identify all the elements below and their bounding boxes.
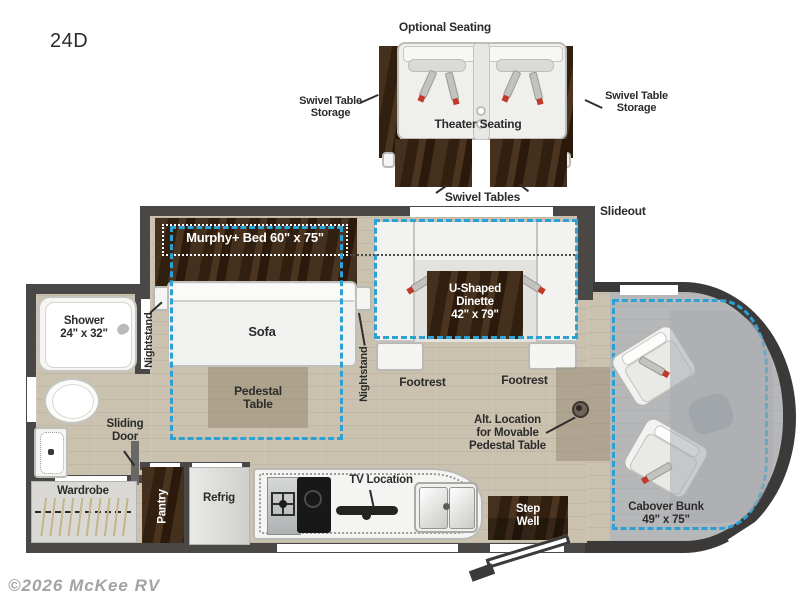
slideout-label: Slideout [600,205,660,218]
nightstand-right-label: Nightstand [358,334,370,414]
cupholder-1 [476,106,486,116]
footrest-right [528,342,577,370]
storage-foot-left [382,152,395,168]
footrest-left [376,342,424,371]
sink-faucet-icon [443,503,450,510]
step-well-label: Step Well [498,503,558,529]
tv-mount [362,511,371,520]
sliding-door-label: Sliding Door [92,418,158,444]
window [27,377,36,422]
swivel-table-storage-left-label: Swivel Table Storage [288,95,373,120]
window [620,285,678,295]
entry-door-cap [469,563,495,582]
pedestal-mount-dot [576,405,582,411]
floorplan-page: 24D Optional Seating Theater Seating Swi… [0,0,800,600]
theater-armrest-left [408,59,466,72]
cooktop-center-knob [279,500,287,508]
pantry-label: Pantry [157,466,170,546]
refrig-label: Refrig [195,492,243,505]
swivel-tables-label: Swivel Tables [430,191,535,204]
tv-location-label: TV Location [340,474,422,487]
window [277,544,458,552]
model-label: 24D [50,30,88,52]
window [410,207,553,217]
theater-armrest-right [496,59,554,72]
cabover-bunk-overlay [670,310,773,523]
optional-seating-title: Optional Seating [385,21,505,34]
dinette-slide-region [374,219,578,339]
swivel-table-right [490,139,567,187]
shower-label: Shower 24" x 32" [49,315,119,341]
toilet-seat [52,384,94,419]
murphy-extension-dotted-line [350,254,575,256]
oven-ring-icon [304,490,322,508]
footrest-right-label: Footrest [487,374,562,387]
alt-pedestal-label: Alt. Location for Movable Pedestal Table [455,414,560,453]
footrest-left-label: Footrest [385,376,460,389]
sink-bowl-right [449,487,475,529]
wardrobe-hangers [38,498,130,536]
watermark: ©2026 McKee RV [8,576,208,595]
murphy-slide-region [170,226,343,440]
swivel-table-storage-right-label: Swivel Table Storage [594,90,679,115]
cabover-bunk-label: Cabover Bunk 49" x 75" [616,501,716,527]
refrigerator [189,467,250,545]
wardrobe-label: Wardrobe [45,485,121,498]
dinette-right-wall [577,206,593,300]
theater-seating-label: Theater Seating [418,118,538,131]
swivel-table-left [395,139,472,187]
bath-faucet-icon [48,449,54,455]
